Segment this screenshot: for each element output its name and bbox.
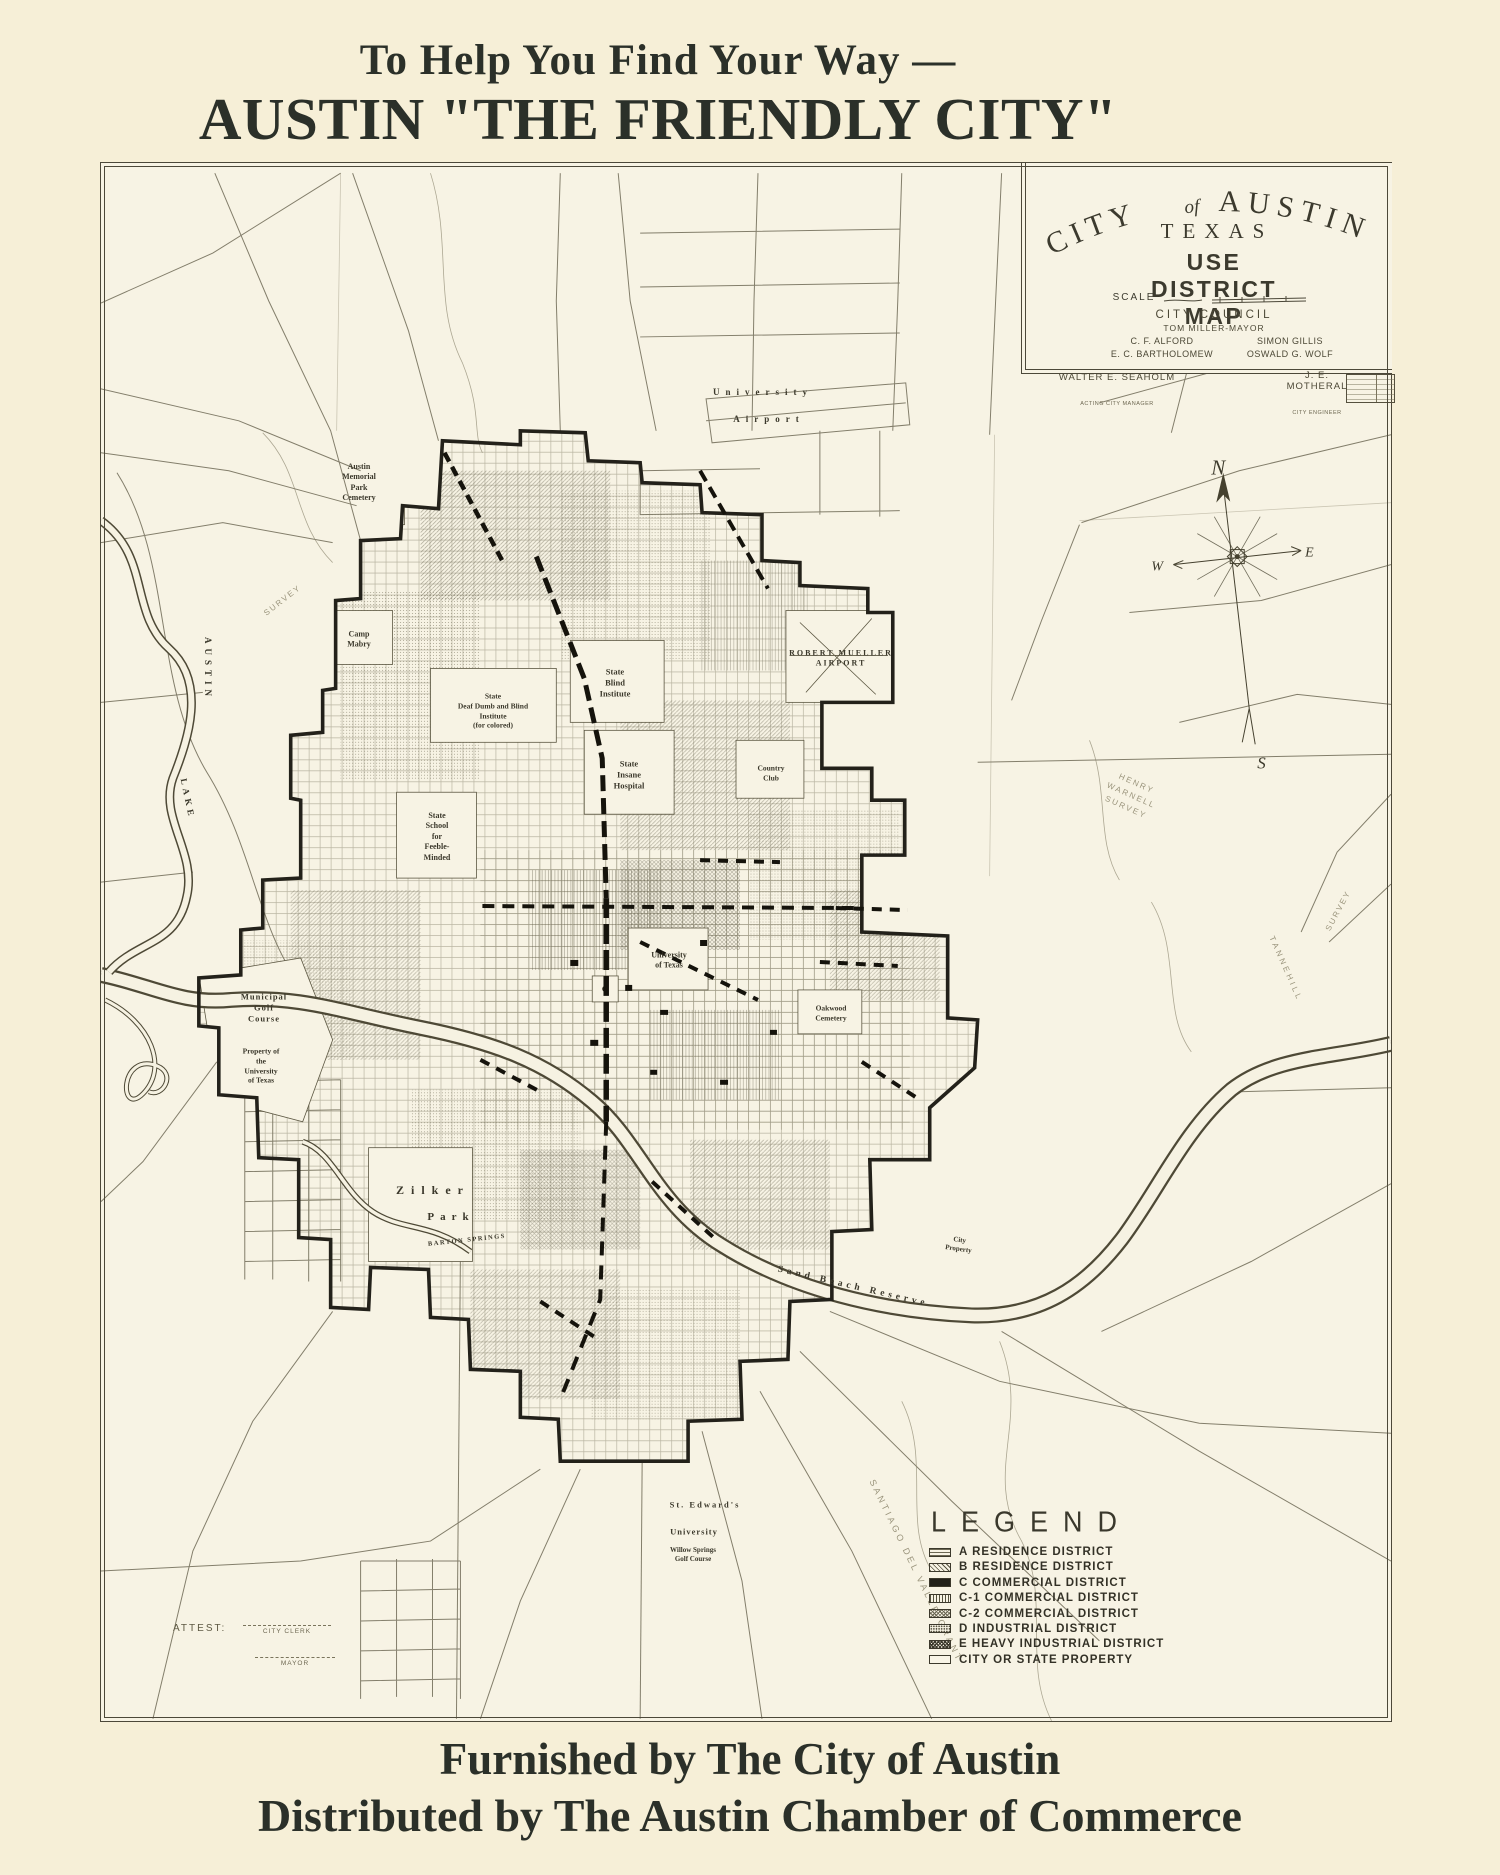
- legend-item-label: B RESIDENCE DISTRICT: [959, 1561, 1114, 1573]
- legend-item: C-2 COMMERCIAL DISTRICT: [929, 1608, 1164, 1620]
- engineer-name: J. E. MOTHERAL: [1280, 370, 1355, 392]
- legend-item-label: A RESIDENCE DISTRICT: [959, 1546, 1113, 1558]
- page-header: To Help You Find Your Way — AUSTIN "THE …: [0, 36, 1316, 154]
- title-cartouche: CITY of AUSTIN TEXAS USE DISTRICT MAP SC…: [1021, 163, 1392, 374]
- compass-w-label: W: [1151, 560, 1164, 575]
- footer-furnished: Furnished by The City of Austin: [0, 1733, 1500, 1785]
- footer-distributed: Distributed by The Austin Chamber of Com…: [0, 1789, 1500, 1842]
- swatch-b-residence-icon: [929, 1563, 951, 1572]
- manager-name: WALTER E. SEAHOLM: [1059, 372, 1175, 383]
- legend-item: CITY OR STATE PROPERTY: [929, 1654, 1164, 1666]
- mayor-caption: MAYOR: [255, 1660, 335, 1667]
- legend-item: A RESIDENCE DISTRICT: [929, 1546, 1164, 1558]
- manager-title: ACTING CITY MANAGER: [1059, 401, 1175, 407]
- swatch-city-state-property-icon: [929, 1655, 951, 1664]
- scale-label: SCALE: [1113, 292, 1156, 303]
- city-manager-block: WALTER E. SEAHOLM ACTING CITY MANAGER: [1059, 354, 1175, 425]
- legend: LEGEND A RESIDENCE DISTRICT B RESIDENCE …: [929, 1507, 1164, 1666]
- city-engineer-block: J. E. MOTHERAL CITY ENGINEER: [1280, 352, 1355, 434]
- swatch-e-heavy-industrial-icon: [929, 1640, 951, 1649]
- compass-e-label: E: [1304, 546, 1314, 561]
- legend-item-label: C-1 COMMERCIAL DISTRICT: [959, 1592, 1139, 1604]
- poster: To Help You Find Your Way — AUSTIN "THE …: [0, 0, 1500, 1875]
- engineer-title: CITY ENGINEER: [1280, 410, 1355, 416]
- compass-rose: N W E S: [1151, 456, 1314, 773]
- mayor-signature-line: [255, 1647, 335, 1658]
- clerk-caption: CITY CLERK: [243, 1628, 331, 1635]
- legend-item: B RESIDENCE DISTRICT: [929, 1561, 1164, 1573]
- swatch-a-residence-icon: [929, 1548, 951, 1557]
- scale-bar: [1160, 294, 1310, 306]
- legend-item: C-1 COMMERCIAL DISTRICT: [929, 1592, 1164, 1604]
- clerk-signature-line: [243, 1615, 331, 1626]
- swatch-c1-commercial-icon: [929, 1594, 951, 1603]
- mayor-line: TOM MILLER-MAYOR: [1163, 323, 1264, 333]
- header-tagline: To Help You Find Your Way —: [0, 36, 1316, 85]
- legend-title: LEGEND: [931, 1506, 1164, 1539]
- page-title: AUSTIN "THE FRIENDLY CITY": [0, 85, 1316, 154]
- legend-item-label: D INDUSTRIAL DISTRICT: [959, 1623, 1117, 1635]
- attest-block: ATTEST: CITY CLERK MAYOR: [173, 1615, 473, 1685]
- swatch-c-commercial-icon: [929, 1578, 951, 1587]
- map-frame: N W E S University Airport Austin Memori…: [100, 162, 1392, 1722]
- compass-s-label: S: [1257, 753, 1266, 772]
- legend-item-label: CITY OR STATE PROPERTY: [959, 1654, 1133, 1666]
- legend-item: C COMMERCIAL DISTRICT: [929, 1577, 1164, 1589]
- swatch-d-industrial-icon: [929, 1624, 951, 1633]
- svg-text:of: of: [1183, 196, 1202, 218]
- swatch-c2-commercial-icon: [929, 1609, 951, 1618]
- legend-item: E HEAVY INDUSTRIAL DISTRICT: [929, 1638, 1164, 1650]
- map-canvas: N W E S: [101, 163, 1391, 1721]
- page-footer: Furnished by The City of Austin Distribu…: [0, 1733, 1500, 1842]
- legend-item-label: E HEAVY INDUSTRIAL DISTRICT: [959, 1638, 1164, 1650]
- compass-n-label: N: [1210, 456, 1226, 480]
- cartouche-of: of: [1183, 196, 1202, 218]
- attest-label: ATTEST:: [173, 1623, 226, 1634]
- legend-item: D INDUSTRIAL DISTRICT: [929, 1623, 1164, 1635]
- legend-item-label: C-2 COMMERCIAL DISTRICT: [959, 1608, 1139, 1620]
- legend-item-label: C COMMERCIAL DISTRICT: [959, 1577, 1127, 1589]
- revision-table: [1346, 374, 1395, 403]
- council-heading: CITY COUNCIL: [1156, 309, 1273, 321]
- cartouche-state: TEXAS: [1161, 219, 1274, 244]
